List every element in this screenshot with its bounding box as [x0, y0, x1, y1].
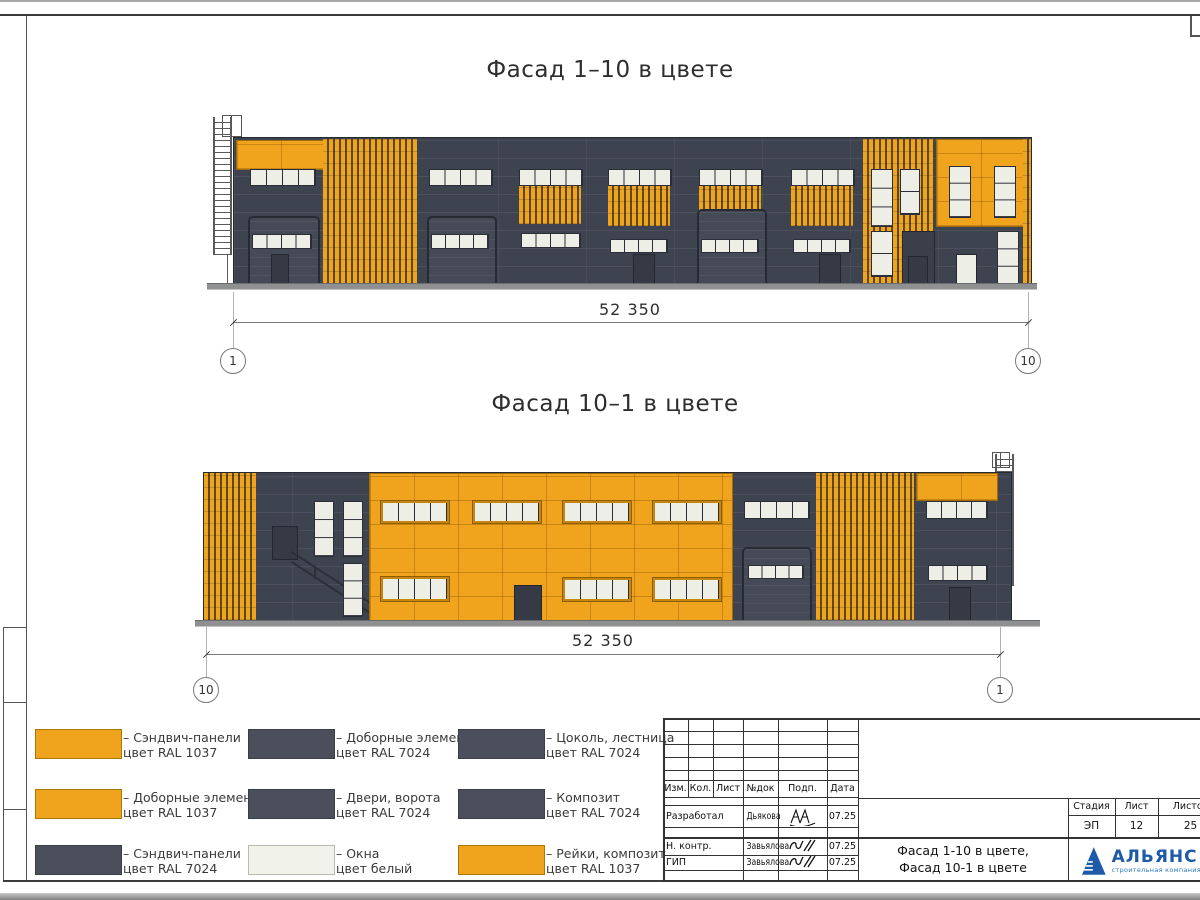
orange-panel: [916, 473, 998, 501]
frame-top-line: [0, 14, 1200, 16]
door: [819, 254, 841, 285]
building-wall: [203, 472, 1012, 622]
white-door: [956, 254, 977, 285]
facade-10-1-drawing: [195, 450, 1040, 630]
tall-window: [994, 166, 1016, 218]
gate: [427, 216, 497, 287]
row-date: 07.25: [827, 805, 858, 827]
col-header-izm: Изм.: [663, 780, 688, 797]
dimension-value: 52 350: [560, 300, 700, 319]
legend-swatch: [248, 845, 335, 875]
logo-pyramid-icon: [1081, 846, 1107, 876]
legend-swatch: [248, 729, 335, 759]
window: [791, 169, 855, 186]
legend-swatch: [35, 789, 122, 819]
row-name: Завьялова: [744, 855, 779, 870]
legend-label: – Сэндвич-панели цвет RAL 7024: [123, 846, 241, 876]
signature-graphic: [787, 855, 821, 870]
orange-panel: [236, 140, 324, 170]
col-header-podp: Подп.: [778, 780, 827, 797]
legend: – Сэндвич-панели цвет RAL 1037 – Доборны…: [0, 715, 660, 885]
door: [633, 254, 655, 285]
legend-label-line: цвет RAL 7024: [546, 745, 674, 760]
titleblock-line: [663, 757, 858, 758]
legend-label: – Сэндвич-панели цвет RAL 1037: [123, 730, 241, 760]
stage-header-stadia: Стадия: [1068, 798, 1115, 815]
titleblock-line: [663, 770, 858, 771]
legend-label-line: – Композит: [546, 790, 640, 805]
legend-label: – Доборные элементы цвет RAL 1037: [123, 790, 269, 820]
signature-graphic: [785, 807, 821, 826]
door: [908, 256, 928, 285]
legend-label-line: цвет RAL 1037: [123, 745, 241, 760]
document-title: Фасад 1-10 в цвете, Фасад 10-1 в цвете: [858, 842, 1068, 876]
legend-label: – Двери, ворота цвет RAL 7024: [336, 790, 441, 820]
document-title-line: Фасад 10-1 в цвете: [858, 859, 1068, 876]
col-header-list: Лист: [713, 780, 743, 797]
document-title-line: Фасад 1-10 в цвете,: [858, 842, 1068, 859]
roof-access-box: [231, 115, 242, 137]
legend-label: – Окна цвет белый: [336, 846, 412, 876]
slat-panel: [323, 139, 417, 284]
window: [252, 234, 312, 249]
slat-panel: [816, 473, 914, 620]
titleblock-line: [663, 731, 858, 732]
legend-label-line: – Сэндвич-панели: [123, 846, 241, 861]
drawing-sheet: Фасад 1–10 в цвете Фасад 10–1 в цвете: [0, 0, 1200, 900]
legend-swatch: [35, 729, 122, 759]
titleblock-border: [663, 880, 1200, 882]
tall-window: [949, 166, 971, 218]
dimension-value: 52 350: [533, 631, 673, 650]
frame-corner-box-vline: [1190, 16, 1192, 35]
axis-marker: 1: [220, 348, 246, 374]
window: [381, 577, 449, 601]
window: [519, 169, 583, 186]
legend-label: – Рейки, композит цвет RAL 1037: [546, 846, 666, 876]
row-date: 07.25: [827, 837, 858, 855]
title-block: Изм. Кол. Лист №док Подп. Дата Разработа…: [663, 718, 1200, 882]
signature-graphic: [787, 838, 821, 854]
slat-panel: [519, 186, 581, 224]
window: [748, 565, 804, 579]
logo-subtitle: строительная компания: [1112, 866, 1200, 874]
row-role: Н. контр.: [663, 837, 746, 855]
legend-label-line: цвет белый: [336, 861, 412, 876]
facade1-title: Фасад 1–10 в цвете: [410, 57, 810, 83]
window: [610, 239, 668, 253]
logo-name: АЛЬЯНС: [1112, 848, 1200, 866]
legend-label-line: – Сэндвич-панели: [123, 730, 241, 745]
stage-value-stadia: ЭП: [1068, 815, 1115, 837]
legend-label: – Цоколь, лестница цвет RAL 7024: [546, 730, 674, 760]
axis-marker: 10: [193, 677, 219, 703]
window: [521, 233, 581, 248]
ladder: [213, 117, 232, 255]
col-header-kol: Кол.: [688, 780, 713, 797]
dimension-line: [206, 654, 1000, 655]
window: [928, 565, 988, 581]
legend-swatch: [458, 845, 545, 875]
window: [563, 501, 631, 523]
row-name: Завьялова: [744, 837, 779, 855]
frame-corner-box-hline: [1190, 35, 1200, 37]
stage-header-list: Лист: [1115, 798, 1158, 815]
legend-label-line: цвет RAL 7024: [123, 861, 241, 876]
stage-value-listov: 25: [1158, 815, 1200, 837]
margin-cell-divider: [3, 627, 27, 628]
axis-marker: 10: [1015, 348, 1041, 374]
tall-window: [900, 169, 920, 215]
legend-label: – Композит цвет RAL 7024: [546, 790, 640, 820]
axis-marker: 1: [987, 677, 1013, 703]
window: [653, 578, 721, 601]
door: [949, 587, 971, 622]
company-logo: АЛЬЯНС строительная компания: [1081, 843, 1200, 879]
legend-label-line: цвет RAL 7024: [546, 805, 640, 820]
ground-line: [207, 283, 1037, 290]
sheet-bottom-edge: [0, 893, 1200, 900]
tall-window: [997, 231, 1019, 285]
titleblock-line: [663, 870, 858, 871]
facade2-title: Фасад 10–1 в цвете: [415, 391, 815, 417]
legend-label-line: цвет RAL 1037: [123, 805, 269, 820]
door: [514, 585, 542, 622]
window: [699, 169, 763, 186]
legend-label-line: – Рейки, композит: [546, 846, 666, 861]
row-role: ГИП: [663, 855, 746, 870]
stage-value-list: 12: [1115, 815, 1158, 837]
window: [381, 501, 449, 523]
margin-cell-divider: [3, 702, 27, 703]
slat-panel: [204, 473, 256, 620]
railing-post: [314, 567, 316, 579]
door: [271, 254, 289, 285]
col-header-data: Дата: [827, 780, 858, 797]
row-date: 07.25: [827, 855, 858, 870]
window: [653, 501, 721, 523]
row-role: Разработал: [663, 805, 746, 827]
stage-header-listov: Листов: [1158, 798, 1200, 815]
legend-label-line: цвет RAL 7024: [336, 805, 441, 820]
tall-window: [871, 231, 893, 277]
ladder-pole: [227, 255, 228, 284]
row-name: Дьякова: [744, 805, 779, 827]
legend-swatch: [248, 789, 335, 819]
gate: [742, 547, 812, 624]
legend-swatch: [35, 845, 122, 875]
sheet-top-edge: [0, 0, 1200, 2]
window: [793, 239, 851, 253]
titleblock-line: [663, 744, 858, 745]
tall-window: [314, 501, 334, 557]
legend-swatch: [458, 729, 545, 759]
legend-label-line: – Цоколь, лестница: [546, 730, 674, 745]
slat-strip: [1023, 139, 1031, 284]
window: [429, 169, 493, 186]
window: [926, 501, 988, 519]
window: [250, 169, 316, 186]
window: [701, 239, 759, 253]
logo-text: АЛЬЯНС строительная компания: [1112, 848, 1200, 874]
tall-window: [343, 501, 363, 557]
facade-1-10-drawing: [207, 113, 1037, 293]
window: [473, 501, 541, 523]
building-wall: [233, 137, 1032, 286]
dimension-line: [233, 322, 1028, 323]
legend-label-line: – Окна: [336, 846, 412, 861]
legend-label-line: – Доборные элементы: [123, 790, 269, 805]
slat-panel: [791, 186, 853, 226]
window: [608, 169, 672, 186]
tall-window: [343, 563, 363, 617]
legend-label-line: – Двери, ворота: [336, 790, 441, 805]
window: [431, 234, 489, 249]
tall-window: [871, 169, 893, 227]
legend-swatch: [458, 789, 545, 819]
slat-panel: [608, 186, 670, 226]
window: [744, 501, 810, 519]
titleblock-line: [663, 827, 858, 828]
legend-label-line: цвет RAL 1037: [546, 861, 666, 876]
titleblock-line: [663, 797, 858, 798]
window: [563, 578, 631, 601]
col-header-ndok: №док: [743, 780, 778, 797]
ground-line: [195, 620, 1040, 627]
